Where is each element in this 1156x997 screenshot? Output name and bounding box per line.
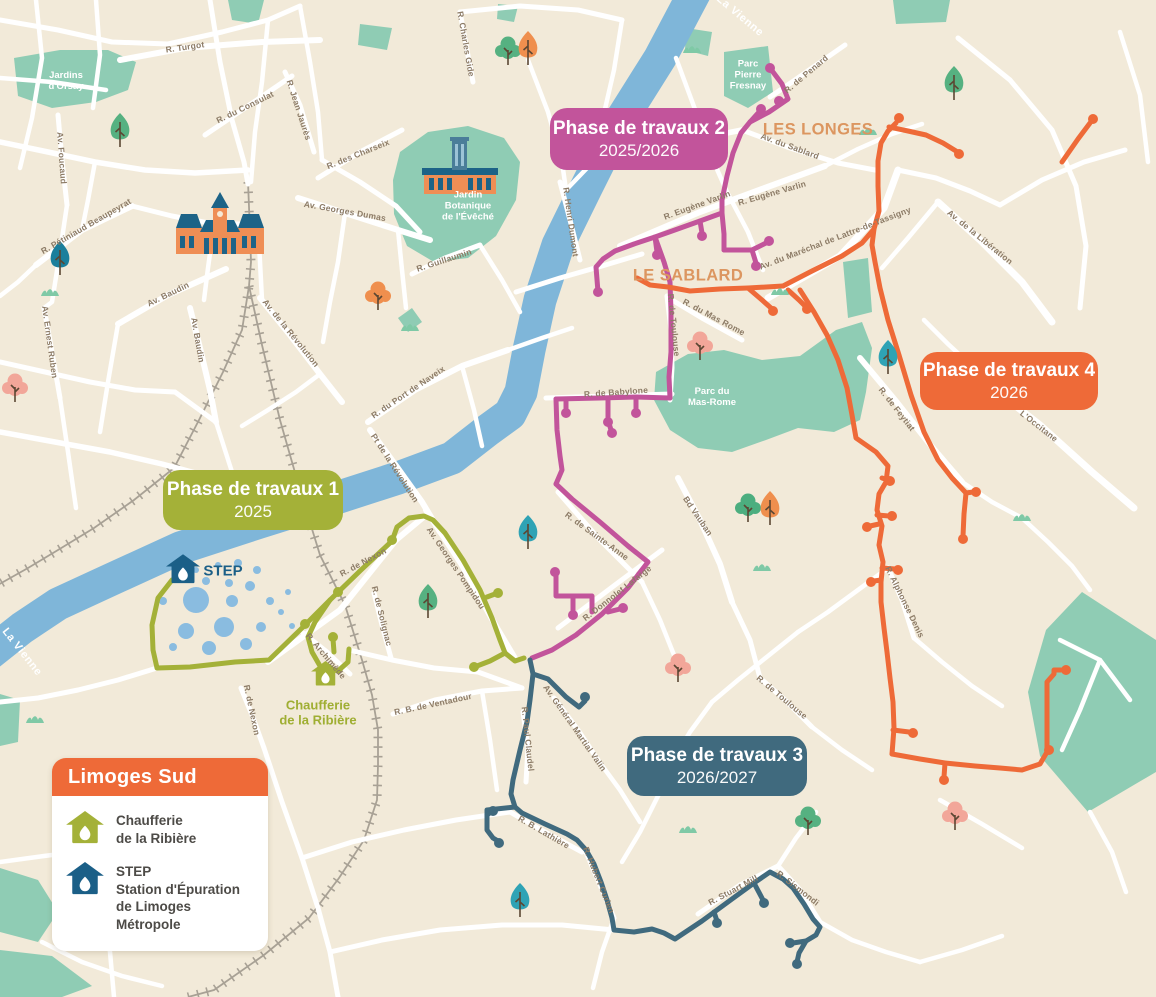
street xyxy=(82,162,95,230)
street xyxy=(393,688,522,714)
route-phase-2-line xyxy=(608,609,620,612)
route-endpoint-dot xyxy=(494,838,504,848)
route-endpoint-dot xyxy=(328,632,338,642)
street xyxy=(426,510,516,660)
phase-2-title: Phase de travaux 2 xyxy=(550,117,728,141)
park-area xyxy=(843,258,872,318)
route-endpoint-dot xyxy=(768,306,778,316)
street xyxy=(285,72,314,152)
tree-icon xyxy=(665,654,691,683)
street xyxy=(318,130,402,178)
route-endpoint-dot xyxy=(300,619,310,629)
route-endpoint-dot xyxy=(792,959,802,969)
route-endpoint-dot xyxy=(469,662,479,672)
route-phase-4-line xyxy=(893,730,909,732)
street xyxy=(241,688,264,748)
route-endpoint-dot xyxy=(785,938,795,948)
street xyxy=(898,170,1000,205)
street xyxy=(642,582,676,660)
route-phase-2-line xyxy=(722,213,724,250)
treatment-pond xyxy=(285,589,291,595)
street xyxy=(938,202,1052,322)
route-phase-4-line xyxy=(963,493,966,536)
street xyxy=(44,308,60,398)
tree-icon xyxy=(51,241,70,275)
route-phase-4-line xyxy=(889,127,956,151)
route-phase-4-line xyxy=(637,278,783,291)
limoges-sud-heating-network-map: R. TurgotR. du ConsulatR. Jean JaurèsR. … xyxy=(0,0,1156,997)
route-endpoint-dot xyxy=(862,522,872,532)
route-endpoint-dot xyxy=(561,408,571,418)
phase-4-years: 2026 xyxy=(920,382,1098,403)
route-endpoint-dot xyxy=(802,304,812,314)
route-phase-2-line xyxy=(556,574,573,596)
tree-icon xyxy=(2,374,28,403)
route-phase-4-line xyxy=(1062,123,1090,162)
tree-icon xyxy=(511,883,530,917)
street xyxy=(0,265,36,296)
route-endpoint-dot xyxy=(954,149,964,159)
street xyxy=(888,568,914,638)
route-endpoint-dot xyxy=(568,610,578,620)
street xyxy=(480,245,520,312)
tree-icon xyxy=(111,113,130,147)
route-endpoint-dot xyxy=(958,534,968,544)
legend-label-chaufferie: Chaufferie de la Ribière xyxy=(116,810,196,847)
phase-2-badge: Phase de travaux 2 2025/2026 xyxy=(550,108,728,170)
park-area xyxy=(0,950,92,997)
grass-icon xyxy=(859,128,877,135)
street xyxy=(242,374,320,426)
route-endpoint-dot xyxy=(756,104,766,114)
route-phase-1-line xyxy=(477,653,505,666)
route-endpoint-dot xyxy=(493,588,503,598)
tree-icon xyxy=(735,494,761,523)
legend-item-chaufferie: Chaufferie de la Ribière xyxy=(66,810,254,847)
chaufferie-house-icon xyxy=(66,811,104,845)
route-endpoint-dot xyxy=(971,487,981,497)
route-endpoint-dot xyxy=(764,236,774,246)
route-endpoint-dot xyxy=(774,96,784,106)
route-endpoint-dot xyxy=(712,918,722,928)
route-endpoint-dot xyxy=(759,898,769,908)
route-endpoint-dot xyxy=(887,511,897,521)
treatment-pond xyxy=(178,623,194,639)
legend-label-step: STEP Station d'Épuration de Limoges Métr… xyxy=(116,861,254,933)
route-endpoint-dot xyxy=(603,417,613,427)
street xyxy=(0,142,248,173)
street xyxy=(798,568,888,632)
treatment-pond xyxy=(225,579,233,587)
street xyxy=(482,691,497,790)
park-area xyxy=(893,0,950,24)
tree-icon xyxy=(519,31,538,65)
phase-1-years: 2025 xyxy=(163,501,343,522)
tree-icon xyxy=(761,491,780,525)
legend-item-step: STEP Station d'Épuration de Limoges Métr… xyxy=(66,861,254,933)
phase-2-years: 2025/2026 xyxy=(550,140,728,161)
treatment-pond xyxy=(183,587,209,613)
grass-icon xyxy=(753,564,771,571)
tree-icon xyxy=(519,515,538,549)
route-endpoint-dot xyxy=(618,603,628,613)
route-phase-4-line xyxy=(783,123,896,286)
route-phase-2-line xyxy=(556,397,670,399)
route-endpoint-dot xyxy=(1061,665,1071,675)
street xyxy=(727,192,763,270)
grass-icon xyxy=(679,826,697,833)
park-area xyxy=(724,46,773,108)
street xyxy=(812,727,872,770)
route-endpoint-dot xyxy=(550,567,560,577)
street xyxy=(60,398,76,508)
route-endpoint-dot xyxy=(488,806,498,816)
phase-4-title: Phase de travaux 4 xyxy=(920,359,1098,383)
phase-3-title: Phase de travaux 3 xyxy=(627,744,807,768)
grass-icon xyxy=(26,716,44,723)
treatment-pond xyxy=(245,581,255,591)
tree-icon xyxy=(419,584,438,618)
tree-icon xyxy=(495,37,521,66)
tree-icon xyxy=(945,66,964,100)
step-house-icon xyxy=(66,862,104,896)
street xyxy=(1090,812,1126,892)
route-endpoint-dot xyxy=(893,565,903,575)
street xyxy=(882,202,938,268)
street xyxy=(302,812,510,858)
treatment-pond xyxy=(234,559,242,567)
phase-3-years: 2026/2027 xyxy=(627,767,807,788)
street xyxy=(920,936,1002,962)
treatment-pond xyxy=(214,617,234,637)
street xyxy=(914,638,1002,706)
street xyxy=(58,115,67,205)
route-endpoint-dot xyxy=(894,113,904,123)
route-endpoint-dot xyxy=(580,692,590,702)
treatment-pond xyxy=(215,562,221,568)
treatment-pond xyxy=(256,622,266,632)
street xyxy=(672,300,742,340)
route-endpoint-dot xyxy=(939,775,949,785)
route-endpoint-dot xyxy=(908,728,918,738)
treatment-pond xyxy=(226,595,238,607)
street xyxy=(374,593,391,658)
street xyxy=(962,482,1022,518)
treatment-pond xyxy=(240,638,252,650)
street xyxy=(510,812,582,852)
route-phase-4-line xyxy=(882,568,895,569)
street xyxy=(1120,32,1148,162)
route-endpoint-dot xyxy=(697,231,707,241)
route-endpoint-dot xyxy=(387,535,397,545)
phase-4-badge: Phase de travaux 4 2026 xyxy=(920,352,1098,410)
treatment-pond xyxy=(266,597,274,605)
street xyxy=(118,269,226,324)
street xyxy=(205,76,292,135)
route-phase-4 xyxy=(637,113,1098,785)
treatment-pond xyxy=(202,577,210,585)
phase-1-badge: Phase de travaux 1 2025 xyxy=(163,470,343,530)
route-endpoint-dot xyxy=(866,577,876,587)
phase-1-title: Phase de travaux 1 xyxy=(163,478,343,502)
park-area xyxy=(358,24,392,50)
street xyxy=(460,12,473,82)
street xyxy=(732,602,760,678)
street xyxy=(958,38,1086,308)
route-phase-2-line xyxy=(556,399,562,484)
park-area xyxy=(654,322,872,452)
route-phase-3-line xyxy=(754,883,763,900)
street xyxy=(100,324,118,432)
route-endpoint-dot xyxy=(333,587,343,597)
route-endpoint-dot xyxy=(631,408,641,418)
park-area xyxy=(0,868,58,942)
street xyxy=(678,478,732,602)
legend-body: Chaufferie de la Ribière STEP Station d'… xyxy=(52,796,268,951)
street xyxy=(0,668,157,702)
route-endpoint-dot xyxy=(751,261,761,271)
treatment-pond xyxy=(278,609,284,615)
street xyxy=(323,213,345,342)
treatment-pond xyxy=(202,641,216,655)
street xyxy=(820,922,920,962)
grass-icon xyxy=(41,289,59,296)
treatment-pond xyxy=(289,623,295,629)
route-phase-4-line xyxy=(944,763,945,777)
route-endpoint-dot xyxy=(765,63,775,73)
route-endpoint-dot xyxy=(593,287,603,297)
route-phase-4-line xyxy=(892,752,1047,770)
street xyxy=(398,230,406,308)
phase-3-badge: Phase de travaux 3 2026/2027 xyxy=(627,736,807,796)
treatment-pond xyxy=(253,566,261,574)
street xyxy=(770,45,845,97)
legend-panel: Limoges Sud Chaufferie de la Ribière STE… xyxy=(52,758,268,951)
treatment-pond xyxy=(169,643,177,651)
route-endpoint-dot xyxy=(885,476,895,486)
tree-icon xyxy=(365,282,391,311)
route-endpoint-dot xyxy=(1044,745,1054,755)
route-endpoint-dot xyxy=(652,250,662,260)
street xyxy=(460,6,622,20)
street xyxy=(264,748,338,997)
route-endpoint-dot xyxy=(1088,114,1098,124)
street xyxy=(558,492,642,582)
legend-title: Limoges Sud xyxy=(68,766,197,788)
chaufferie-house-icon xyxy=(311,661,340,686)
street xyxy=(760,678,812,727)
legend-header: Limoges Sud xyxy=(52,758,268,796)
street xyxy=(330,925,614,952)
street xyxy=(1022,518,1090,590)
route-endpoint-dot xyxy=(607,428,617,438)
